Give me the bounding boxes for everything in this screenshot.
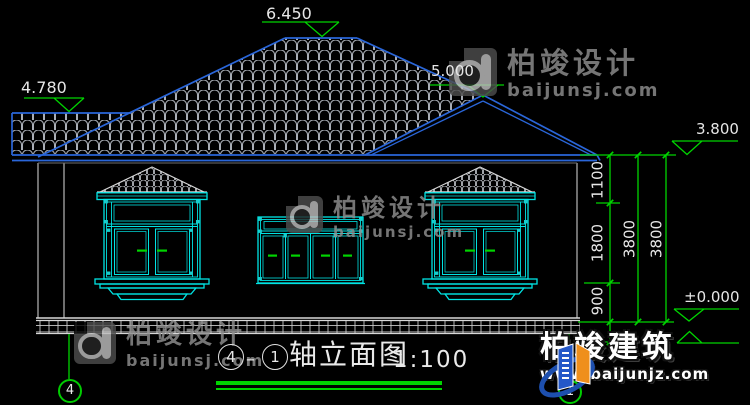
title-axis-circle-1: 1 (262, 344, 288, 370)
dim-label-900: 900 (591, 287, 606, 316)
watermark-brand: 柏竣设计 (507, 48, 660, 78)
watermark-top-right: 柏竣设计 baijunsj.com (449, 48, 660, 101)
level-marker-0000 (674, 309, 739, 321)
elevation-drawing-canvas: 柏竣设计 baijunsj.com 柏竣设计 baijunsj.com 柏竣设计… (0, 0, 750, 405)
drawing-scale: 1:100 (393, 349, 469, 372)
title-axis-circle-4: 4 (218, 344, 244, 370)
level-label-right-ridge: 5.000 (431, 64, 474, 79)
level-marker-4780 (24, 98, 84, 112)
title-underline-thick (216, 381, 442, 385)
sash-handles (465, 250, 495, 252)
sash-handles (137, 250, 167, 252)
title-underline-thin (216, 388, 442, 390)
baijun-watermark-logo-icon (286, 196, 323, 233)
level-label-eave: 3.800 (696, 122, 739, 137)
dim-label-3800-outer: 3800 (650, 220, 665, 258)
level-label-ground: ±0.000 (684, 290, 740, 305)
watermark-brand: 柏竣设计 (333, 196, 464, 221)
title-dash: – (246, 351, 255, 369)
level-label-main-ridge: 6.450 (266, 6, 312, 22)
branding-block: 柏竣建筑 www.baijunjz.com (536, 332, 709, 383)
left-bay-window (95, 167, 209, 300)
level-marker-6450 (262, 22, 339, 37)
dim-label-1100: 1100 (591, 161, 606, 199)
dim-label-3800-inner: 3800 (623, 220, 638, 258)
baijun-building-logo-icon (536, 332, 608, 402)
watermark-site: baijunsj.com (333, 223, 464, 241)
drawing-title: 轴立面图 (289, 340, 409, 371)
watermark-brand: 柏竣设计 (126, 322, 264, 349)
baijun-watermark-logo-icon (74, 322, 116, 364)
watermark-center: 柏竣设计 baijunsj.com (286, 196, 464, 241)
level-label-left-ridge: 4.780 (21, 80, 67, 96)
frame-corner-dots (105, 200, 200, 275)
axis-bubble-4: 4 (58, 379, 82, 403)
dim-label-1800: 1800 (591, 224, 606, 262)
watermark-site: baijunsj.com (507, 80, 660, 101)
level-marker-3800 (672, 141, 738, 155)
